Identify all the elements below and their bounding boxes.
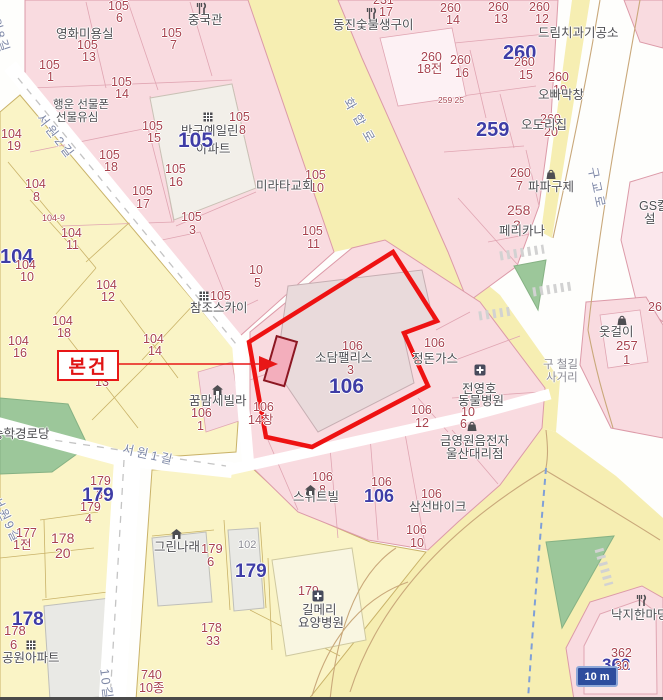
parcel-number-label: 105: [132, 185, 153, 198]
parcel-number-label: 26: [648, 301, 662, 314]
poi-label: 송학경로당: [0, 428, 50, 441]
poi-label: 설: [644, 213, 656, 226]
poi-label: 미라타교회: [256, 180, 314, 193]
parcel-number-label: 8: [239, 124, 246, 137]
parcel-number-label: 106: [406, 524, 427, 537]
shopping-bag-icon: [616, 313, 629, 326]
poi-label: 오빠막창: [538, 89, 584, 102]
parcel-number-label: 16: [455, 67, 469, 80]
parcel-number-label: 6: [207, 555, 214, 568]
parcel-number-label: 10: [410, 537, 424, 550]
apartment-building-icon: [25, 638, 38, 651]
parcel-number-label: 13: [494, 13, 508, 26]
parcel-number-label: 1: [47, 71, 54, 84]
parcel-number-label: 14: [446, 14, 460, 27]
poi-label: 동진숯불생구이: [333, 19, 414, 32]
poi-label: 행운 선물폰: [53, 100, 109, 112]
parcel-number-label: 106: [312, 471, 333, 484]
parcel-number-label: 260: [548, 71, 569, 84]
block-number-label: 105: [178, 130, 213, 151]
road-name-label: 화합로: [341, 96, 380, 150]
block-number-label: 179: [235, 562, 267, 581]
parcel-number-label: 4: [85, 513, 92, 526]
poi-label: 페리카나: [499, 225, 545, 238]
restaurant-icon: [194, 2, 207, 15]
parcel-number-label: 11: [307, 238, 320, 251]
parcel-number-label: 33: [206, 635, 220, 648]
parcel-number-label: 15: [147, 132, 161, 145]
block-number-label: 106: [364, 487, 394, 505]
parcel-number-label: 7: [516, 180, 523, 193]
poi-label: 낙지한마당: [611, 609, 663, 622]
parcel-number-label: 13: [82, 51, 96, 64]
hospital-cross-icon: [312, 589, 325, 602]
poi-label: 정돈가스: [412, 353, 458, 366]
poi-label: 드림치과기공소: [538, 27, 619, 40]
poi-label: 삼선바이크: [409, 501, 467, 514]
parcel-number-label: 12: [101, 291, 115, 304]
parcel-number-label: 178: [4, 624, 26, 637]
parcel-number-label: 259 25: [438, 96, 464, 105]
parcel-number-label: 6: [10, 638, 17, 651]
parcel-number-label: 104-9: [42, 214, 65, 223]
house-icon: [211, 383, 224, 396]
subject-callout-badge: 본건: [57, 350, 119, 381]
shopping-bag-icon: [466, 419, 479, 432]
parcel-number-label: 260: [450, 54, 471, 67]
parcel-number-label: 260: [514, 56, 535, 69]
parcel-number-label: 8: [33, 191, 40, 204]
parcel-number-label: 3: [189, 224, 196, 237]
poi-label: 요양병원: [298, 617, 344, 630]
parcel-number-label: 18: [57, 327, 71, 340]
block-number-label: 259: [476, 120, 509, 140]
parcel-number-label: 10종: [139, 682, 164, 695]
poi-label: 오도리집: [521, 119, 567, 132]
poi-label: 그린나래: [154, 541, 200, 554]
map-scale-badge: 10 m: [576, 666, 618, 687]
poi-label: 소담팰리스: [315, 352, 373, 365]
parcel-number-label: 178: [201, 622, 222, 635]
poi-label: 옷걸이: [599, 326, 634, 339]
house-icon: [170, 527, 183, 540]
minor-label: 사거리: [546, 373, 578, 385]
parcel-number-label: 11: [66, 239, 79, 252]
poi-label: 공원아파트: [2, 652, 60, 665]
parcel-number-label: 19: [7, 140, 21, 153]
poi-label: 울산대리점: [446, 448, 504, 461]
parcel-number-label: 12: [415, 417, 429, 430]
cadastral-map-canvas[interactable]: 1056중국관영화미용실105710513105110514행운 선물폰선물유심…: [0, 0, 663, 700]
poi-label: 금영원음전자: [440, 435, 509, 448]
parcel-number-label: 106: [191, 407, 212, 420]
block-number-label: 106: [329, 376, 364, 397]
parcel-number-label: 257: [616, 339, 638, 352]
poi-label: GS칼: [639, 200, 663, 213]
parcel-number-label: 12: [535, 13, 549, 26]
subject-callout-label: 본건: [69, 352, 108, 379]
poi-label: 참조스카이: [190, 302, 248, 315]
house-icon: [304, 483, 317, 496]
parcel-number-label: 15: [519, 69, 533, 82]
parcel-number-label: 10: [249, 264, 263, 277]
road-name-label: 구교로: [586, 166, 608, 211]
parcel-number-label: 20: [55, 546, 71, 560]
parcel-number-label: 258: [507, 203, 530, 217]
restaurant-icon: [634, 594, 647, 607]
parcel-number-label: 106: [424, 337, 445, 350]
parcel-number-label: 105: [229, 111, 250, 124]
parcel-number-label: 104: [25, 178, 46, 191]
shopping-bag-icon: [545, 167, 558, 180]
parcel-number-label: 106: [411, 404, 432, 417]
parcel-number-label: 260: [510, 167, 531, 180]
parcel-number-label: 14: [115, 88, 129, 101]
parcel-number-label: 14: [148, 345, 162, 358]
apartment-building-icon: [198, 289, 211, 302]
restaurant-icon: [364, 7, 377, 20]
parcel-number-label: 7: [170, 39, 177, 52]
parcel-number-label: 17: [136, 198, 150, 211]
parcel-number-label: 18: [104, 161, 118, 174]
map-scale-label: 10 m: [584, 671, 609, 683]
parcel-number-label: 178: [51, 531, 74, 545]
poi-label: 파파구제: [528, 181, 574, 194]
parcel-number-label: 740: [141, 669, 162, 682]
parcel-number-label: 1전: [13, 539, 31, 552]
parcel-number-label: 106: [421, 488, 442, 501]
minor-label: 102: [238, 540, 256, 551]
parcel-number-label: 106: [253, 401, 274, 414]
road-name-label: 서원1길: [121, 443, 176, 467]
parcel-number-label: 105: [181, 211, 202, 224]
parcel-number-label: 18전: [417, 63, 442, 76]
parcel-number-label: 6: [116, 12, 123, 25]
apartment-building-icon: [202, 110, 215, 123]
road-name-label: 서원8길: [0, 4, 11, 55]
minor-label: 구 철길: [543, 360, 578, 372]
parcel-number-label: 17: [379, 6, 393, 19]
road-name-label: 10길: [97, 668, 113, 700]
parcel-number-label: 105: [165, 163, 186, 176]
parcel-number-label: 105: [302, 225, 323, 238]
parcel-number-label: 1: [623, 353, 630, 366]
poi-label: 중국관: [188, 14, 223, 27]
hospital-cross-icon: [474, 363, 487, 376]
parcel-number-label: 16: [169, 176, 183, 189]
parcel-number-label: 16: [13, 347, 27, 360]
parcel-number-label: 10: [20, 271, 34, 284]
parcel-number-label: 5: [254, 277, 261, 290]
poi-label: 선물유심: [56, 113, 98, 125]
poi-label: 길메리: [302, 604, 337, 617]
parcel-number-label: 14창: [248, 414, 273, 427]
parcel-number-label: 1: [197, 420, 204, 433]
